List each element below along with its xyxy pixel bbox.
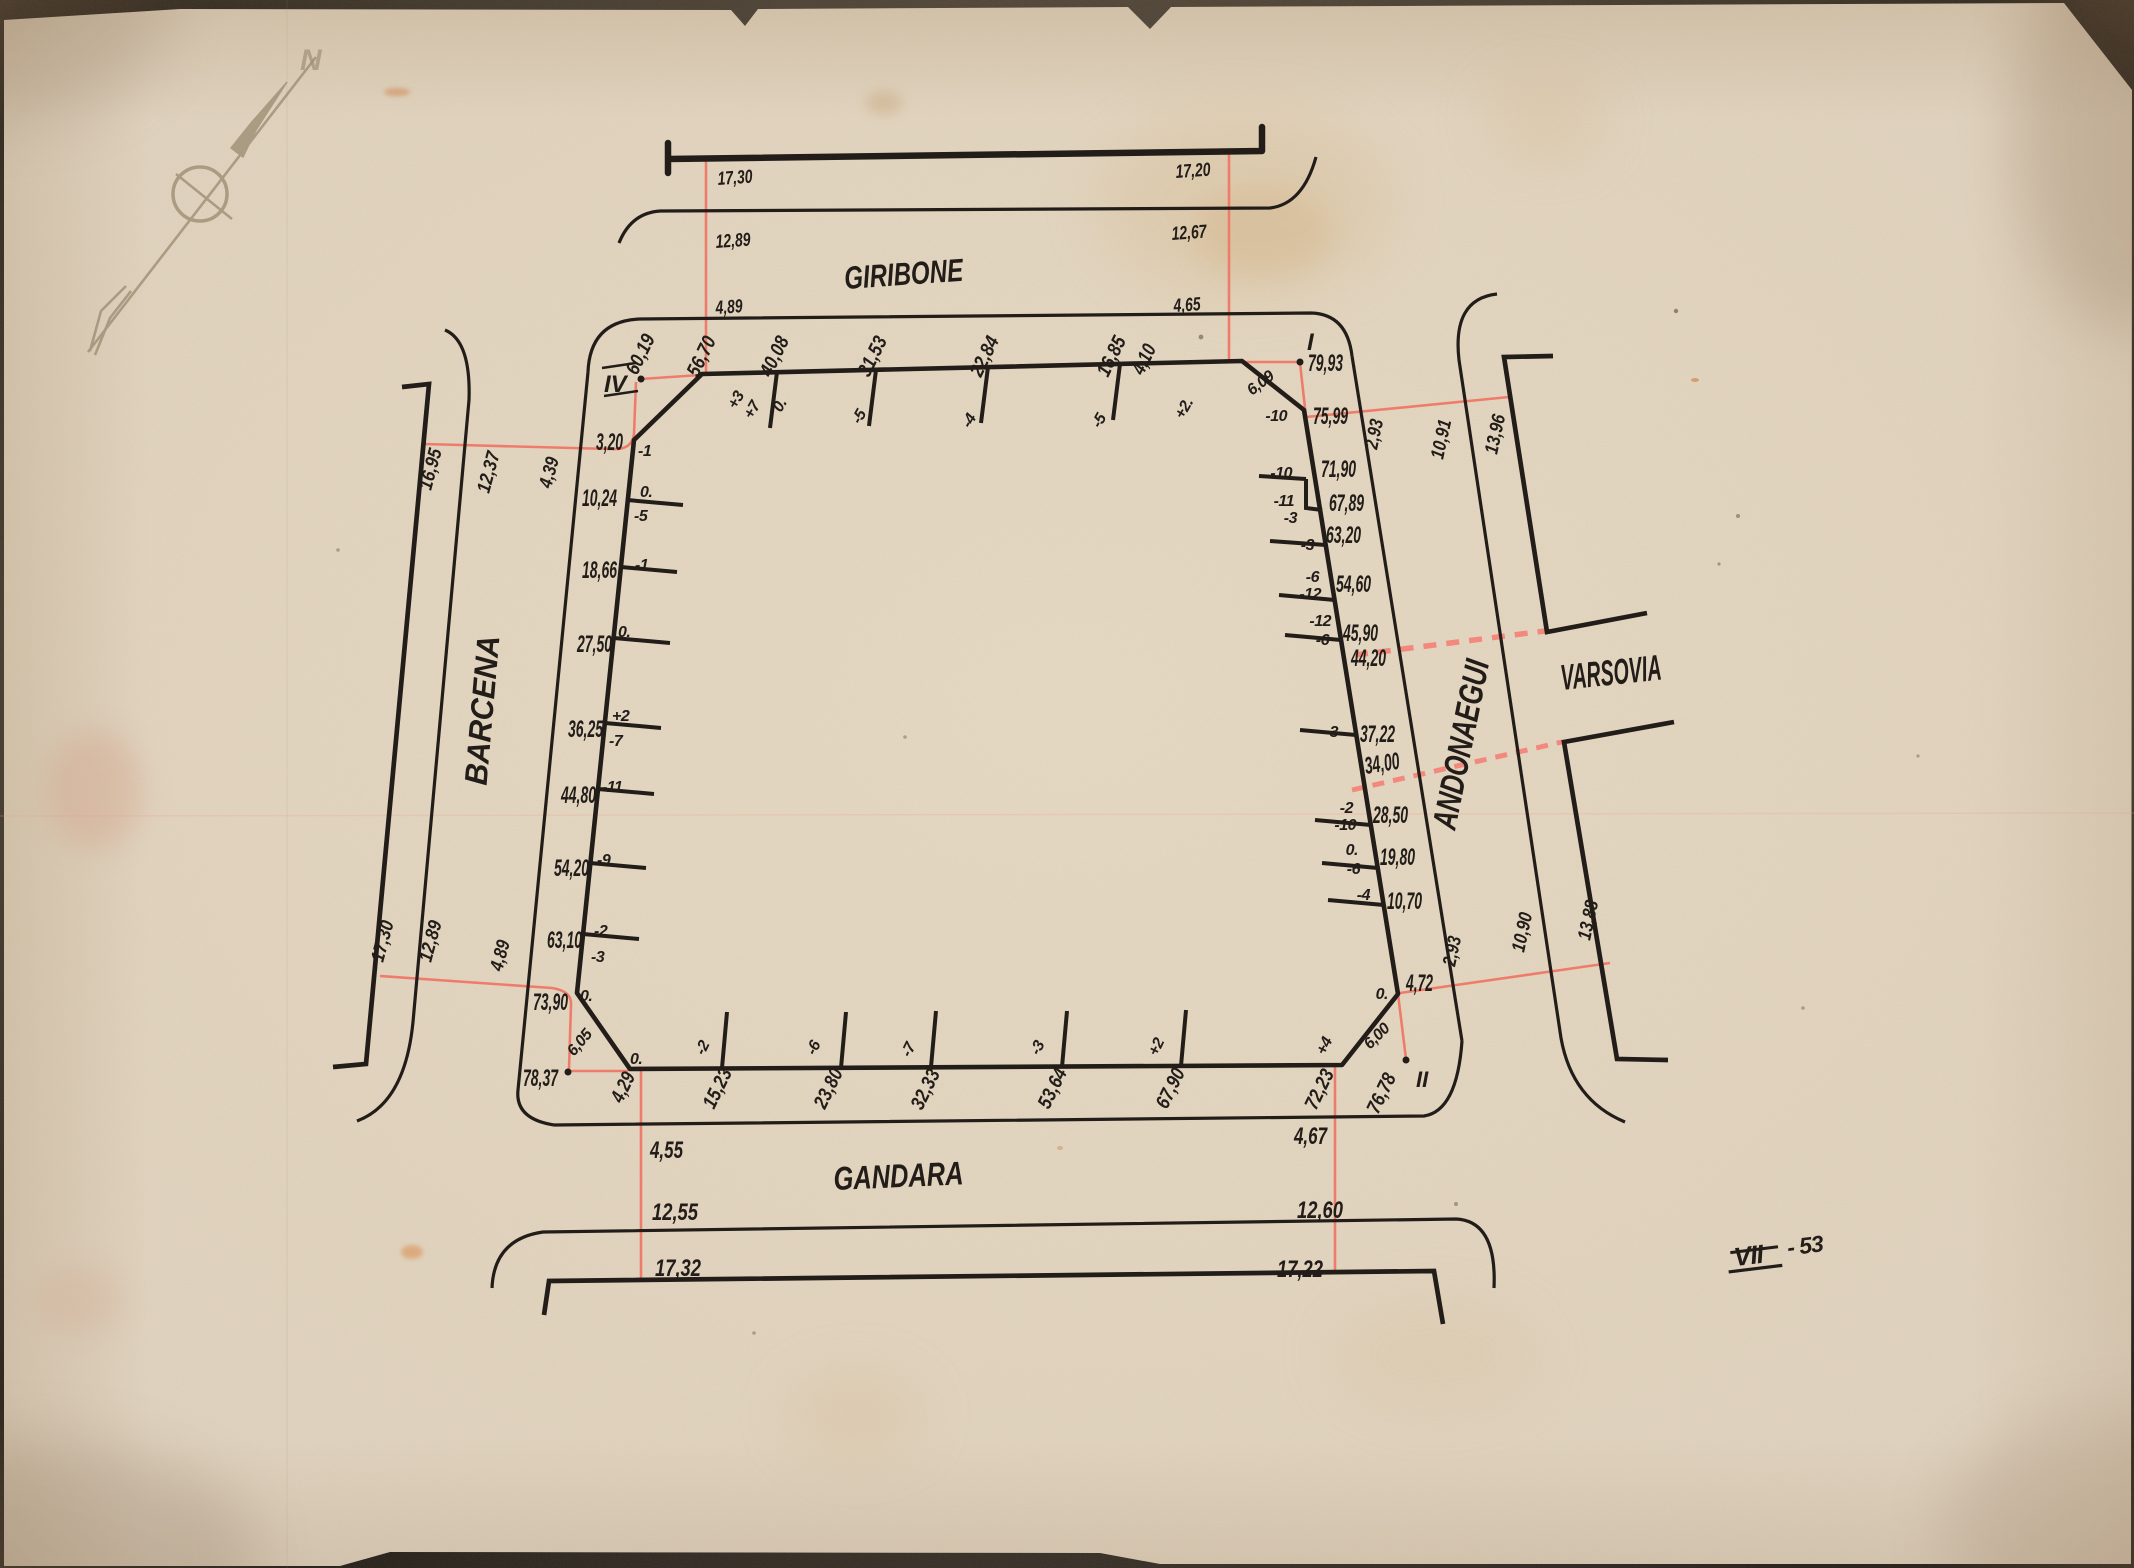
svg-text:-5: -5: [634, 508, 649, 525]
svg-text:34,00: 34,00: [1363, 748, 1402, 780]
svg-text:44,20: 44,20: [1350, 645, 1386, 672]
svg-text:0.: 0.: [640, 484, 652, 501]
svg-text:67,89: 67,89: [1329, 490, 1364, 517]
svg-text:- 53: - 53: [1786, 1230, 1826, 1260]
svg-text:12,60: 12,60: [1297, 1197, 1343, 1224]
svg-text:N: N: [300, 44, 323, 77]
svg-text:-12: -12: [1299, 586, 1321, 603]
svg-text:-10: -10: [1270, 465, 1292, 482]
svg-text:28,50: 28,50: [1372, 802, 1408, 829]
svg-text:37,22: 37,22: [1360, 721, 1395, 748]
svg-text:4,72: 4,72: [1405, 970, 1433, 997]
svg-text:-7: -7: [609, 733, 624, 750]
svg-text:36,25: 36,25: [568, 716, 603, 743]
svg-text:19,80: 19,80: [1380, 844, 1415, 871]
svg-text:-11: -11: [1274, 493, 1295, 510]
svg-text:0.: 0.: [1376, 986, 1388, 1003]
svg-text:12,67: 12,67: [1171, 222, 1208, 245]
svg-text:27,50: 27,50: [576, 631, 612, 658]
svg-text:-1: -1: [635, 557, 649, 574]
svg-text:17,30: 17,30: [717, 167, 754, 190]
svg-text:4,89: 4,89: [714, 296, 743, 319]
svg-text:0.: 0.: [580, 988, 592, 1005]
svg-text:0.: 0.: [618, 624, 630, 641]
svg-text:-10: -10: [1334, 817, 1356, 834]
svg-text:71,90: 71,90: [1321, 456, 1356, 483]
svg-text:-4: -4: [1357, 887, 1371, 904]
svg-text:-6: -6: [1347, 861, 1361, 878]
svg-text:79,93: 79,93: [1308, 350, 1343, 377]
svg-text:-9: -9: [597, 852, 611, 869]
svg-text:44,80: 44,80: [560, 782, 596, 809]
svg-text:4,65: 4,65: [1172, 294, 1201, 317]
svg-text:3,20: 3,20: [596, 429, 623, 456]
svg-text:-2: -2: [594, 923, 608, 940]
svg-text:17,20: 17,20: [1175, 160, 1212, 183]
svg-text:4,67: 4,67: [1293, 1123, 1328, 1150]
svg-text:II: II: [1416, 1067, 1429, 1092]
svg-text:-6: -6: [1316, 632, 1330, 649]
svg-text:78,37: 78,37: [523, 1065, 559, 1092]
svg-text:-3: -3: [1325, 724, 1339, 741]
svg-text:63,10: 63,10: [547, 927, 582, 954]
svg-text:12,89: 12,89: [715, 230, 752, 253]
svg-text:-6: -6: [1306, 569, 1320, 586]
svg-text:10,24: 10,24: [582, 485, 617, 512]
svg-text:-3: -3: [591, 949, 605, 966]
svg-text:45,90: 45,90: [1342, 620, 1378, 647]
svg-text:63,20: 63,20: [1326, 522, 1361, 549]
svg-text:GANDARA: GANDARA: [833, 1154, 964, 1197]
svg-text:0.: 0.: [630, 1051, 642, 1068]
svg-text:54,60: 54,60: [1336, 571, 1371, 598]
svg-text:-3: -3: [1284, 510, 1298, 527]
svg-text:73,90: 73,90: [533, 989, 568, 1016]
svg-text:-2: -2: [1340, 800, 1354, 817]
svg-text:12,55: 12,55: [652, 1199, 698, 1226]
svg-text:0.: 0.: [1346, 842, 1358, 859]
svg-text:-11: -11: [602, 779, 623, 796]
svg-text:54,20: 54,20: [554, 855, 589, 882]
svg-text:75,99: 75,99: [1313, 403, 1348, 430]
svg-text:-3: -3: [1301, 537, 1315, 554]
svg-text:17,22: 17,22: [1277, 1256, 1323, 1283]
svg-text:-12: -12: [1309, 613, 1331, 630]
svg-text:10,70: 10,70: [1387, 888, 1422, 915]
svg-text:-10: -10: [1265, 408, 1287, 425]
svg-text:17,32: 17,32: [655, 1255, 701, 1282]
svg-text:+2: +2: [612, 708, 630, 725]
svg-text:18,66: 18,66: [582, 557, 617, 584]
svg-text:4,55: 4,55: [649, 1137, 683, 1164]
svg-text:-1: -1: [638, 443, 652, 460]
